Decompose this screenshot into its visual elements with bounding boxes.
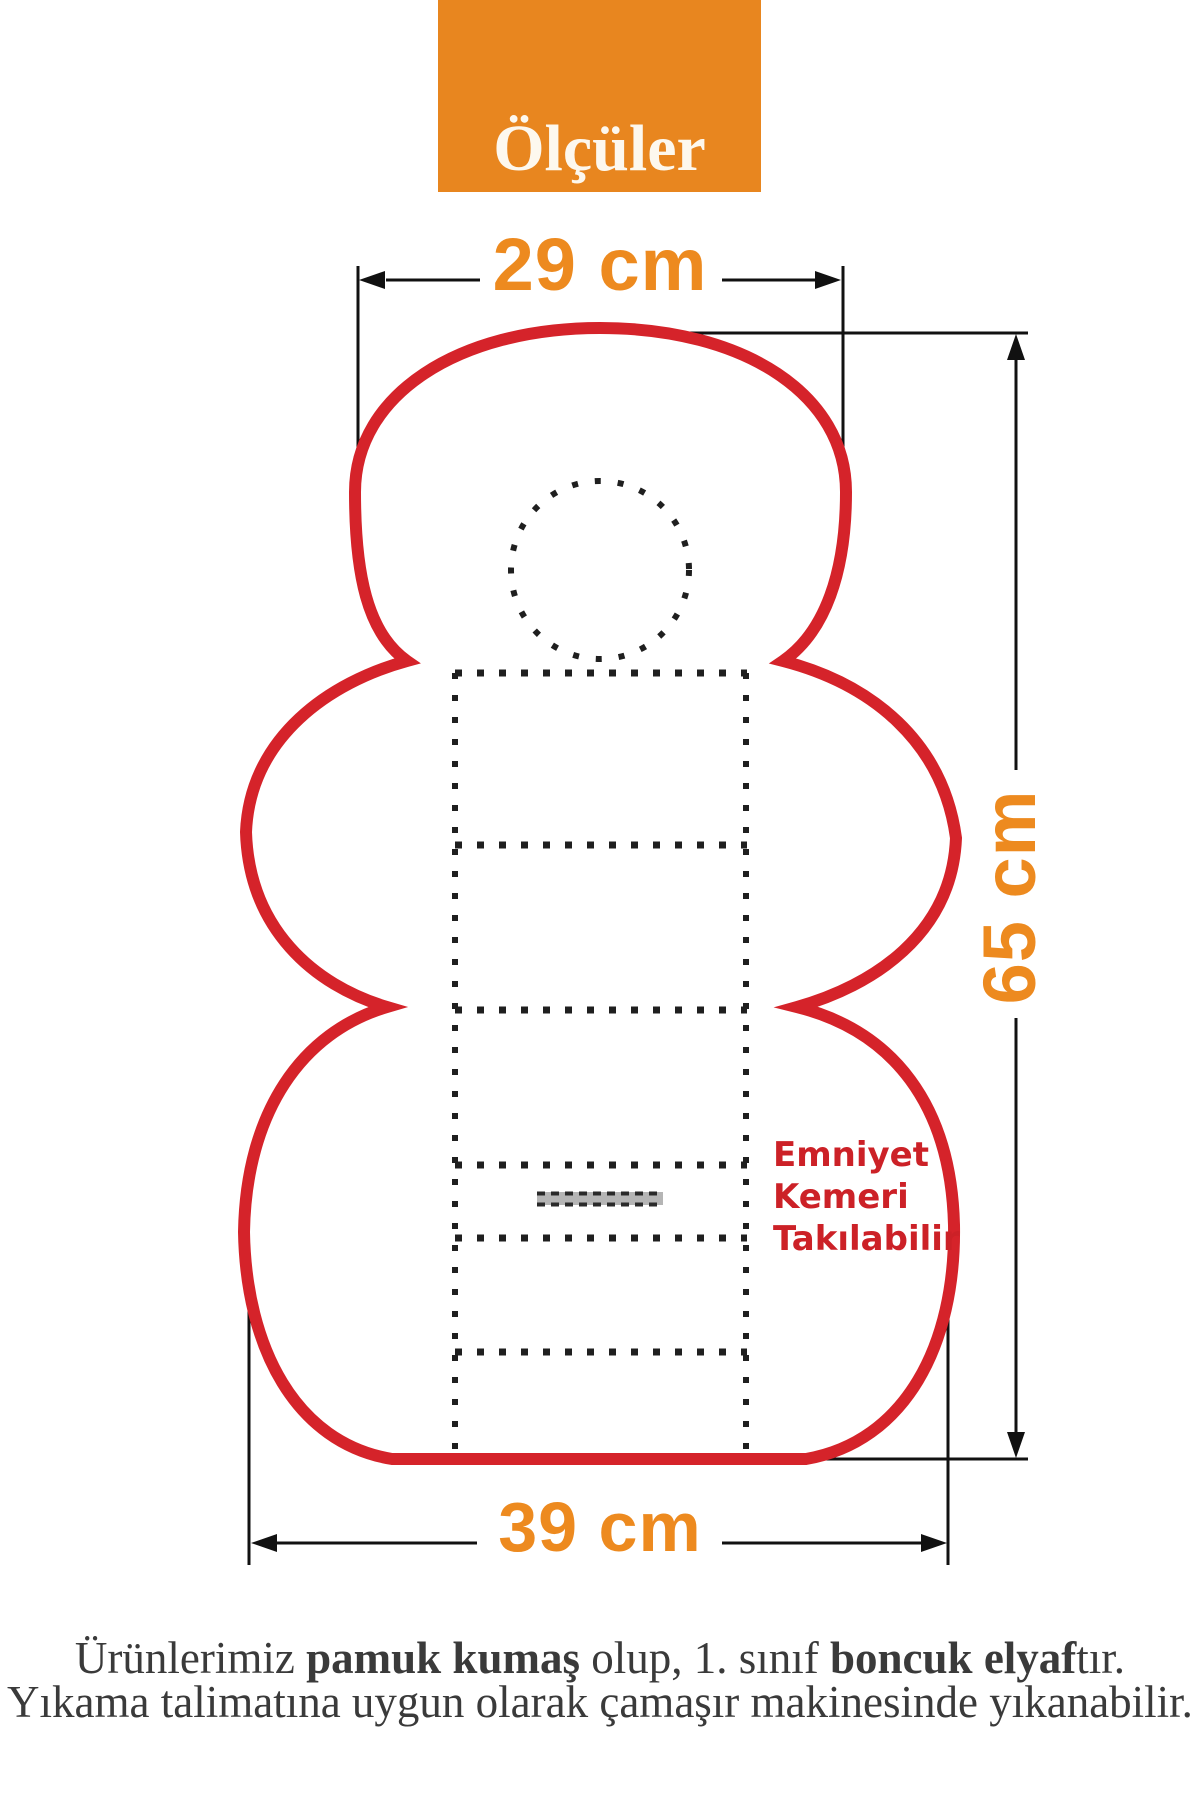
footer-line1-regular: tır. xyxy=(1076,1633,1125,1683)
header-box: Ölçüler xyxy=(438,0,761,192)
footer-text: Ürünlerimiz pamuk kumaş olup, 1. sınıf b… xyxy=(0,1636,1200,1724)
quilt-horizontal-stitches xyxy=(455,673,747,1352)
top-width-label: 29 cm xyxy=(0,228,1200,302)
belt-note: Emniyet Kemeri Takılabilir xyxy=(773,1134,993,1260)
footer-line-2: Yıkama talimatına uygun olarak çamaşır m… xyxy=(0,1680,1200,1724)
belt-note-line: Takılabilir xyxy=(773,1218,993,1260)
bottom-width-label: 39 cm xyxy=(0,1492,1200,1562)
footer-line1-regular: olup, 1. sınıf xyxy=(580,1633,830,1683)
quilt-vertical-stitches xyxy=(455,673,746,1455)
footer-line1-regular: Ürünlerimiz xyxy=(75,1633,306,1683)
headrest-stitch-circle xyxy=(511,481,689,659)
page-title: Ölçüler xyxy=(493,116,706,182)
footer-line-1: Ürünlerimiz pamuk kumaş olup, 1. sınıf b… xyxy=(0,1636,1200,1680)
belt-note-line: Kemeri xyxy=(773,1176,993,1218)
side-height-label: 65 cm xyxy=(973,790,1047,1005)
footer-line1-bold: boncuk elyaf xyxy=(830,1633,1076,1683)
belt-note-line: Emniyet xyxy=(773,1134,993,1176)
footer-line1-bold: pamuk kumaş xyxy=(306,1633,580,1683)
